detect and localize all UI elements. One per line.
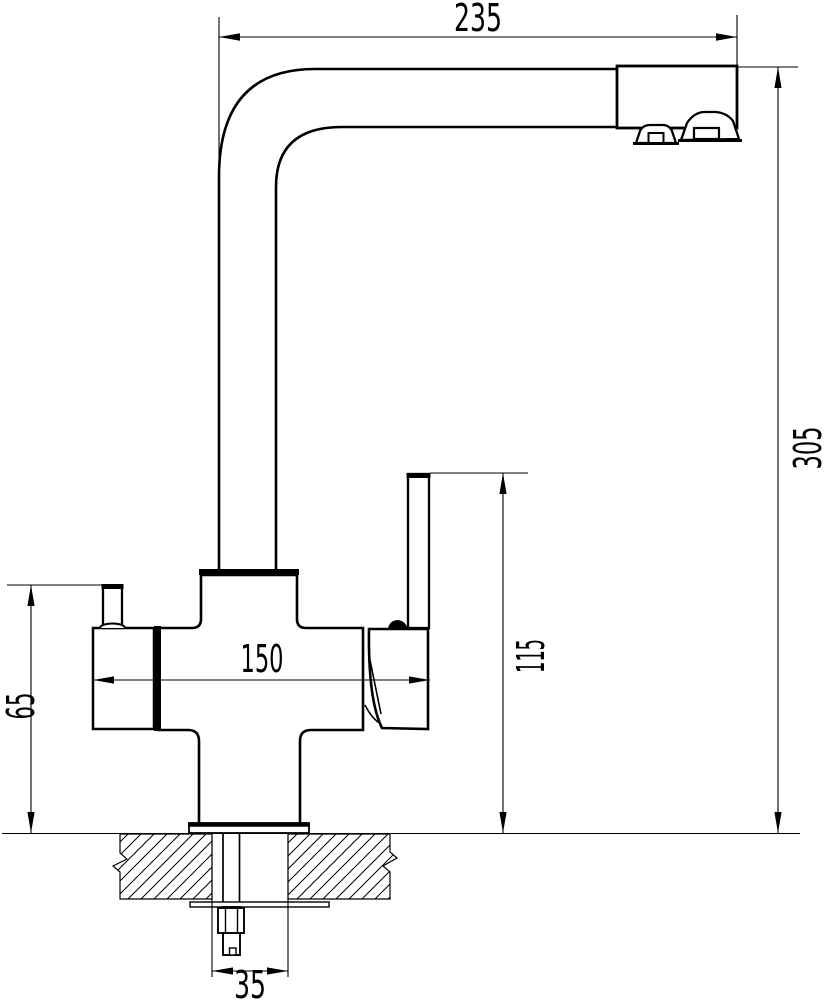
dimension-label: 65 (0, 693, 43, 720)
left-handle-pin-base (100, 624, 125, 629)
dimension-label: 115 (509, 639, 553, 673)
body-cross-outline (158, 575, 363, 824)
aerator-small-outlet (649, 133, 664, 143)
aerator-large-outlet (694, 128, 719, 139)
countertop-hatch-right (288, 834, 397, 899)
dimension-side-handle-height: 65 (0, 585, 103, 833)
stud-end-notch (230, 948, 237, 955)
washer-plate (190, 902, 329, 907)
dimension-label: 305 (786, 427, 824, 470)
lever-handle (365, 474, 431, 729)
dimension-label: 150 (241, 637, 284, 681)
left-handle-pin (103, 586, 122, 628)
spout (219, 66, 742, 572)
spout-inner-edge (276, 127, 618, 572)
lever-rod (408, 474, 429, 628)
dimension-label: 235 (454, 0, 502, 40)
threaded-shank-lines (223, 834, 240, 902)
mounting-nut (218, 908, 244, 933)
countertop-section (2, 834, 800, 900)
dimension-overall-height: 305 (737, 67, 824, 833)
dimension-lever-height: 115 (430, 473, 553, 833)
faucet-technical-drawing: 235 305 150 115 65 35 (0, 0, 824, 1000)
countertop-hatch-left (113, 834, 212, 899)
faucet-body (93, 572, 363, 833)
lever-pivot-dome (388, 620, 408, 628)
dimension-label: 35 (234, 963, 266, 1000)
technical-drawing-canvas: 235 305 150 115 65 35 (0, 0, 824, 1000)
